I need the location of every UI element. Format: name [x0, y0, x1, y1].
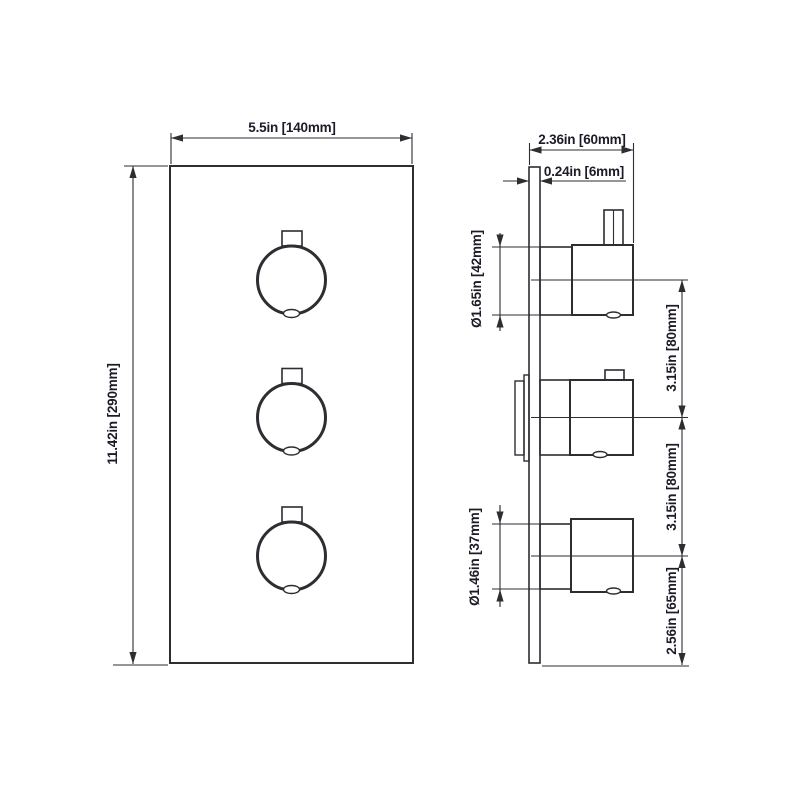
knob-tab-bottom — [282, 507, 302, 522]
dimension-label-front-height: 11.42in [290mm] — [105, 363, 120, 464]
dimension-label-top-diameter: Ø1.65in [42mm] — [469, 230, 484, 328]
knob-circle-top — [258, 246, 326, 314]
knob-tab-top — [282, 231, 302, 246]
knob-tab-middle — [282, 369, 302, 384]
knob-notch-top — [284, 310, 300, 318]
dimension-label-spacing-upper: 3.15in [80mm] — [664, 304, 679, 391]
dimension-label-thickness: 0.24in [6mm] — [544, 164, 624, 179]
knob-notch-middle — [284, 447, 300, 455]
side-roughin-inner — [515, 381, 524, 455]
dimension-label-front-width: 5.5in [140mm] — [248, 120, 335, 135]
front-dimensions: 5.5in [140mm] 11.42in [290mm] — [105, 120, 412, 665]
dimension-label-bottom-offset: 2.56in [65mm] — [664, 567, 679, 654]
side-stem-middle — [605, 370, 624, 380]
dimension-label-bottom-diameter: Ø1.46in [37mm] — [467, 508, 482, 606]
side-notch-bottom — [607, 588, 621, 594]
drawing-svg: 5.5in [140mm] 11.42in [290mm] — [0, 0, 800, 800]
knob-circle-bottom — [258, 522, 326, 590]
side-notch-middle — [593, 452, 607, 458]
dimension-label-depth: 2.36in [60mm] — [538, 132, 625, 147]
side-dimensions: 2.36in [60mm] 0.24in [6mm] Ø1.65in [42mm… — [467, 132, 689, 666]
dimension-label-spacing-lower: 3.15in [80mm] — [664, 443, 679, 530]
technical-drawing: 5.5in [140mm] 11.42in [290mm] — [0, 0, 800, 800]
knob-notch-bottom — [284, 586, 300, 594]
side-notch-top — [607, 312, 621, 318]
side-collar-top — [540, 247, 572, 315]
knob-circle-middle — [258, 384, 326, 452]
front-view — [170, 166, 413, 663]
